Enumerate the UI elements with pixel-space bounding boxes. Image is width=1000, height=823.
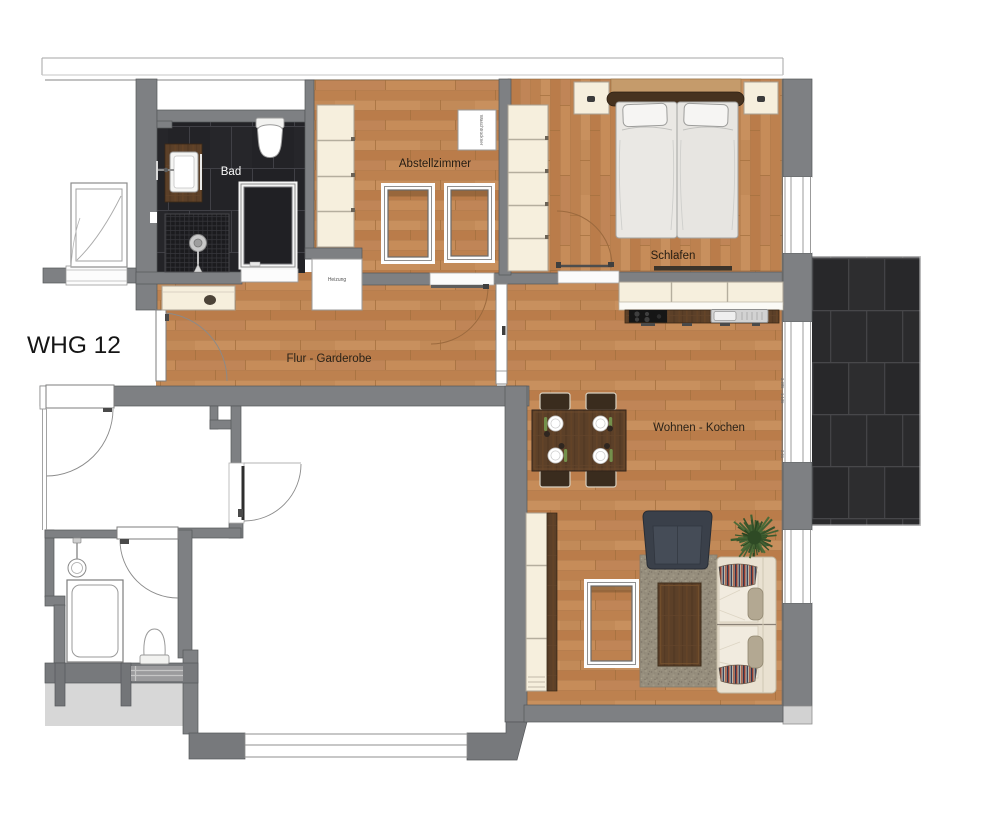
svg-text:Flur - Garderobe: Flur - Garderobe xyxy=(286,353,371,365)
svg-text:Schlafen: Schlafen xyxy=(651,250,696,262)
svg-text:Wohnen - Kochen: Wohnen - Kochen xyxy=(653,422,745,434)
svg-text:Waschtrockner: Waschtrockner xyxy=(479,115,484,146)
svg-text:Bad: Bad xyxy=(221,166,241,178)
svg-text:WHG 12: WHG 12 xyxy=(27,332,121,359)
svg-text:1.135: 1.135 xyxy=(780,393,785,404)
svg-text:Abstellzimmer: Abstellzimmer xyxy=(399,158,471,170)
svg-text:Heizung: Heizung xyxy=(328,277,347,283)
svg-text:2.385: 2.385 xyxy=(780,378,785,389)
svg-text:2.01: 2.01 xyxy=(780,450,785,459)
